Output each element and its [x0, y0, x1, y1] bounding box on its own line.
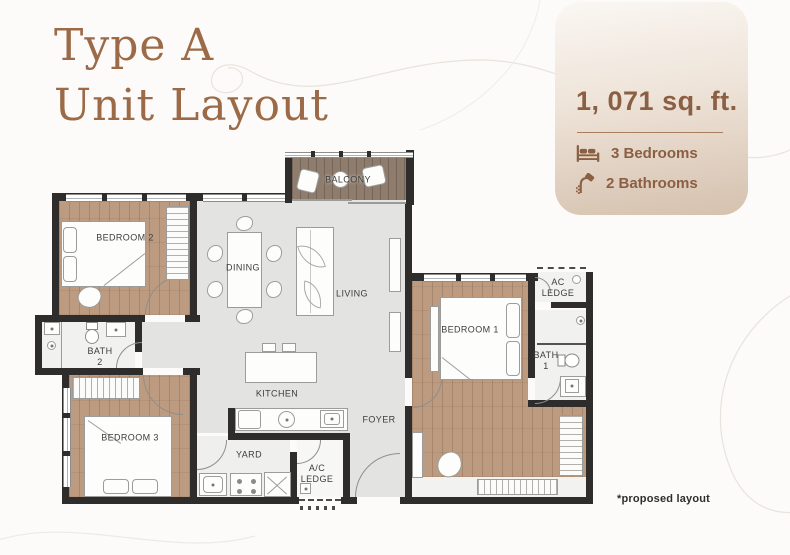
wall — [62, 497, 299, 504]
tv-console — [389, 238, 401, 292]
wall — [406, 150, 414, 205]
window — [66, 194, 186, 202]
tv-console — [389, 312, 401, 352]
stool — [282, 343, 296, 352]
shower-head — [576, 316, 585, 325]
bedrooms-label: 3 Bedrooms — [611, 145, 698, 162]
vanity-sink — [44, 322, 60, 335]
wall — [586, 272, 593, 503]
card-divider — [577, 132, 723, 133]
kitchen-island — [245, 352, 317, 383]
bathrooms-stat: 2 Bathrooms — [576, 173, 698, 194]
wall — [290, 452, 297, 503]
dresser — [477, 479, 558, 495]
page: Type A Unit Layout 1, 071 sq. ft. 3 Bedr… — [0, 0, 790, 555]
pillow — [506, 303, 520, 338]
toilet — [84, 322, 100, 345]
window-mullion — [456, 273, 461, 281]
cooktop — [278, 411, 295, 428]
wall — [405, 203, 412, 378]
wall — [405, 406, 412, 503]
wall — [190, 368, 197, 503]
room-label-bath1: BATH 1 — [534, 350, 559, 372]
water-heater — [264, 472, 291, 497]
vent-grille — [300, 506, 340, 510]
room-label-bedroom2: BEDROOM 2 — [96, 233, 154, 244]
pillow — [63, 256, 77, 282]
ac-ledge-dashed-edge — [537, 267, 586, 273]
wall — [52, 193, 59, 322]
sliding-door — [292, 199, 352, 201]
page-title-line2: Unit Layout — [54, 76, 329, 136]
window-mullion — [490, 273, 495, 281]
room-label-ac-ledge-upper: AC LEDGE — [542, 277, 575, 299]
wall — [228, 433, 350, 440]
sink-basin — [203, 476, 223, 493]
shower-glass — [61, 322, 62, 368]
wall — [343, 433, 350, 503]
ac-ledge-dashed-edge — [299, 499, 341, 505]
wall — [185, 315, 200, 322]
railing-post — [311, 151, 315, 157]
room-label-ac-ledge-lower: A/C LEDGE — [301, 463, 334, 485]
oven — [238, 410, 261, 429]
sliding-door — [348, 202, 406, 204]
sink-basin — [324, 413, 340, 425]
room-label-bedroom3: BEDROOM 3 — [101, 433, 159, 444]
room-label-kitchen: KITCHEN — [256, 389, 298, 400]
wardrobe — [559, 415, 583, 476]
pillow — [103, 479, 129, 494]
wardrobe — [72, 377, 140, 399]
page-title-line1: Type A — [54, 16, 329, 76]
sink — [106, 322, 126, 337]
wall — [285, 155, 292, 203]
wall — [35, 368, 143, 375]
stats-card: 1, 071 sq. ft. 3 Bedrooms 2 Bathrooms — [555, 2, 748, 215]
area-value: 1, 071 sq. ft. — [576, 86, 738, 117]
window-mullion — [62, 451, 70, 456]
shower-partition — [537, 343, 586, 345]
desk — [412, 432, 423, 478]
wall — [400, 497, 593, 504]
window-mullion — [242, 193, 247, 201]
room-label-foyer: FOYER — [362, 415, 395, 426]
window-mullion — [142, 193, 147, 201]
window — [424, 274, 526, 282]
stove — [230, 473, 262, 496]
shower-head — [47, 341, 56, 350]
wardrobe — [166, 206, 189, 280]
railing-post — [339, 151, 343, 157]
footnote: *proposed layout — [617, 493, 710, 505]
wall — [190, 193, 197, 315]
room-label-bath2: BATH 2 — [88, 346, 113, 368]
stool — [262, 343, 276, 352]
room-label-dining: DINING — [226, 263, 260, 274]
room-label-balcony: BALCONY — [325, 175, 371, 186]
corridor-floor — [142, 322, 197, 368]
pillow — [132, 479, 158, 494]
room-label-yard: YARD — [236, 450, 262, 461]
bedrooms-stat: 3 Bedrooms — [576, 144, 698, 163]
window — [63, 388, 71, 487]
room-label-living: LIVING — [336, 289, 368, 300]
balcony-railing — [285, 152, 413, 158]
wall — [35, 315, 42, 375]
shower-icon — [576, 173, 595, 194]
bedside-bench — [430, 306, 439, 372]
room-label-bedroom1: BEDROOM 1 — [441, 325, 499, 336]
window-mullion — [62, 413, 70, 418]
toilet — [558, 353, 581, 369]
railing-post — [367, 151, 371, 157]
bathrooms-label: 2 Bathrooms — [606, 175, 698, 192]
wall — [35, 315, 145, 322]
sink-basin — [565, 379, 579, 393]
bed-icon — [576, 144, 600, 163]
page-title: Type A Unit Layout — [54, 16, 329, 136]
pillow — [63, 227, 77, 253]
pillow — [506, 341, 520, 376]
window-mullion — [102, 193, 107, 201]
